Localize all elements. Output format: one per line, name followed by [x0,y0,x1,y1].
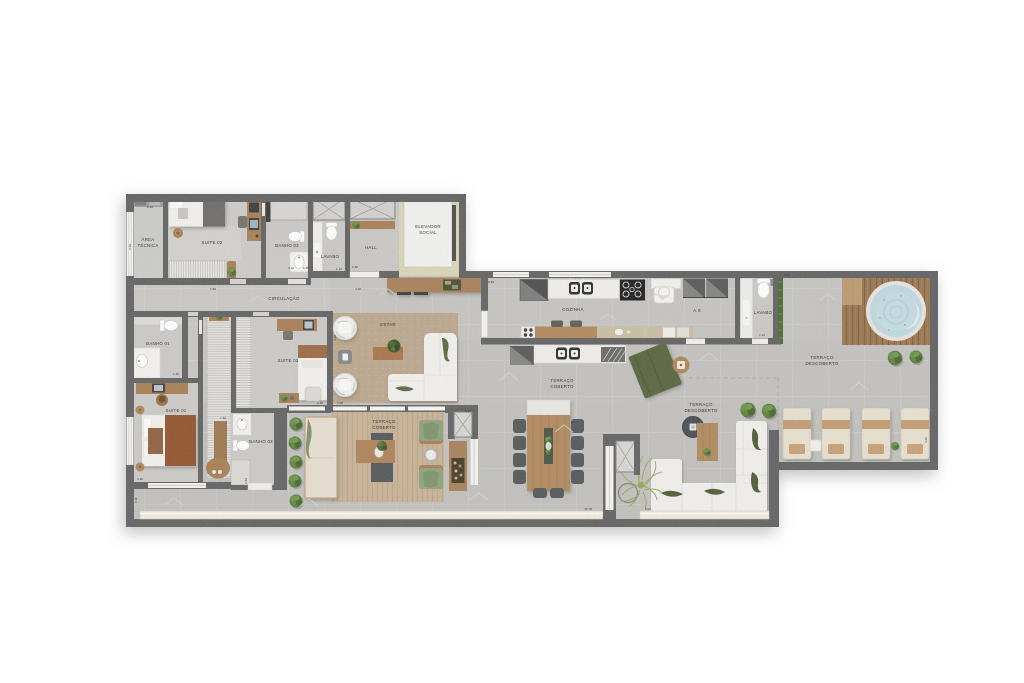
svg-text:BANHO 03: BANHO 03 [249,439,273,444]
svg-text:ÁREA: ÁREA [142,237,155,242]
svg-text:TÉCNICA: TÉCNICA [137,243,158,248]
svg-text:4.40: 4.40 [924,437,928,443]
svg-text:3.12: 3.12 [288,266,294,270]
svg-text:1.40: 1.40 [220,416,226,420]
svg-text:CIRCULAÇÃO: CIRCULAÇÃO [268,296,300,301]
svg-text:COBERTO: COBERTO [372,425,396,430]
svg-text:5.03: 5.03 [337,401,343,405]
svg-text:2.34: 2.34 [244,478,248,484]
svg-text:BANHO 01: BANHO 01 [146,341,170,346]
svg-text:SUITE 01: SUITE 01 [165,408,186,413]
svg-text:1.30: 1.30 [317,401,323,405]
svg-text:0.90: 0.90 [134,497,138,503]
svg-text:5.07: 5.07 [645,507,651,511]
svg-text:1.40: 1.40 [173,372,179,376]
svg-text:COBERTO: COBERTO [550,384,574,389]
svg-text:9.37: 9.37 [784,273,790,277]
svg-text:LAVABO: LAVABO [754,310,773,315]
svg-text:7.46: 7.46 [210,287,216,291]
svg-text:ELEVADOR: ELEVADOR [415,224,441,229]
svg-text:1.35: 1.35 [303,266,309,270]
svg-text:15.78: 15.78 [584,507,592,511]
svg-text:DESCOBERTO: DESCOBERTO [805,361,838,366]
svg-text:TERRAÇO: TERRAÇO [810,355,834,360]
svg-text:4.32: 4.32 [333,335,337,341]
svg-text:TERRAÇO: TERRAÇO [550,378,574,383]
svg-text:8.46: 8.46 [488,280,494,284]
svg-text:5.92: 5.92 [465,409,471,413]
svg-text:SOCIAL: SOCIAL [419,230,437,235]
svg-text:3.20: 3.20 [137,477,143,481]
svg-text:BANHO 02: BANHO 02 [275,243,299,248]
svg-text:1.50: 1.50 [352,265,358,269]
svg-text:HALL: HALL [365,245,377,250]
svg-text:TERRAÇO: TERRAÇO [689,402,713,407]
svg-text:5.12: 5.12 [147,205,153,209]
svg-text:A.S: A.S [693,308,701,313]
svg-text:SUITE 02: SUITE 02 [201,240,222,245]
svg-text:TERRAÇO: TERRAÇO [372,419,396,424]
svg-text:DESCOBERTO: DESCOBERTO [684,408,717,413]
svg-text:4.39: 4.39 [355,287,361,291]
svg-text:COZINHA: COZINHA [562,307,584,312]
svg-text:ESTAR: ESTAR [380,322,396,327]
svg-text:2.39: 2.39 [128,244,132,250]
svg-text:1.13: 1.13 [336,267,342,271]
svg-text:1.10: 1.10 [759,333,765,337]
svg-text:LAVABO: LAVABO [321,254,340,259]
svg-text:SUITE 03: SUITE 03 [277,358,298,363]
